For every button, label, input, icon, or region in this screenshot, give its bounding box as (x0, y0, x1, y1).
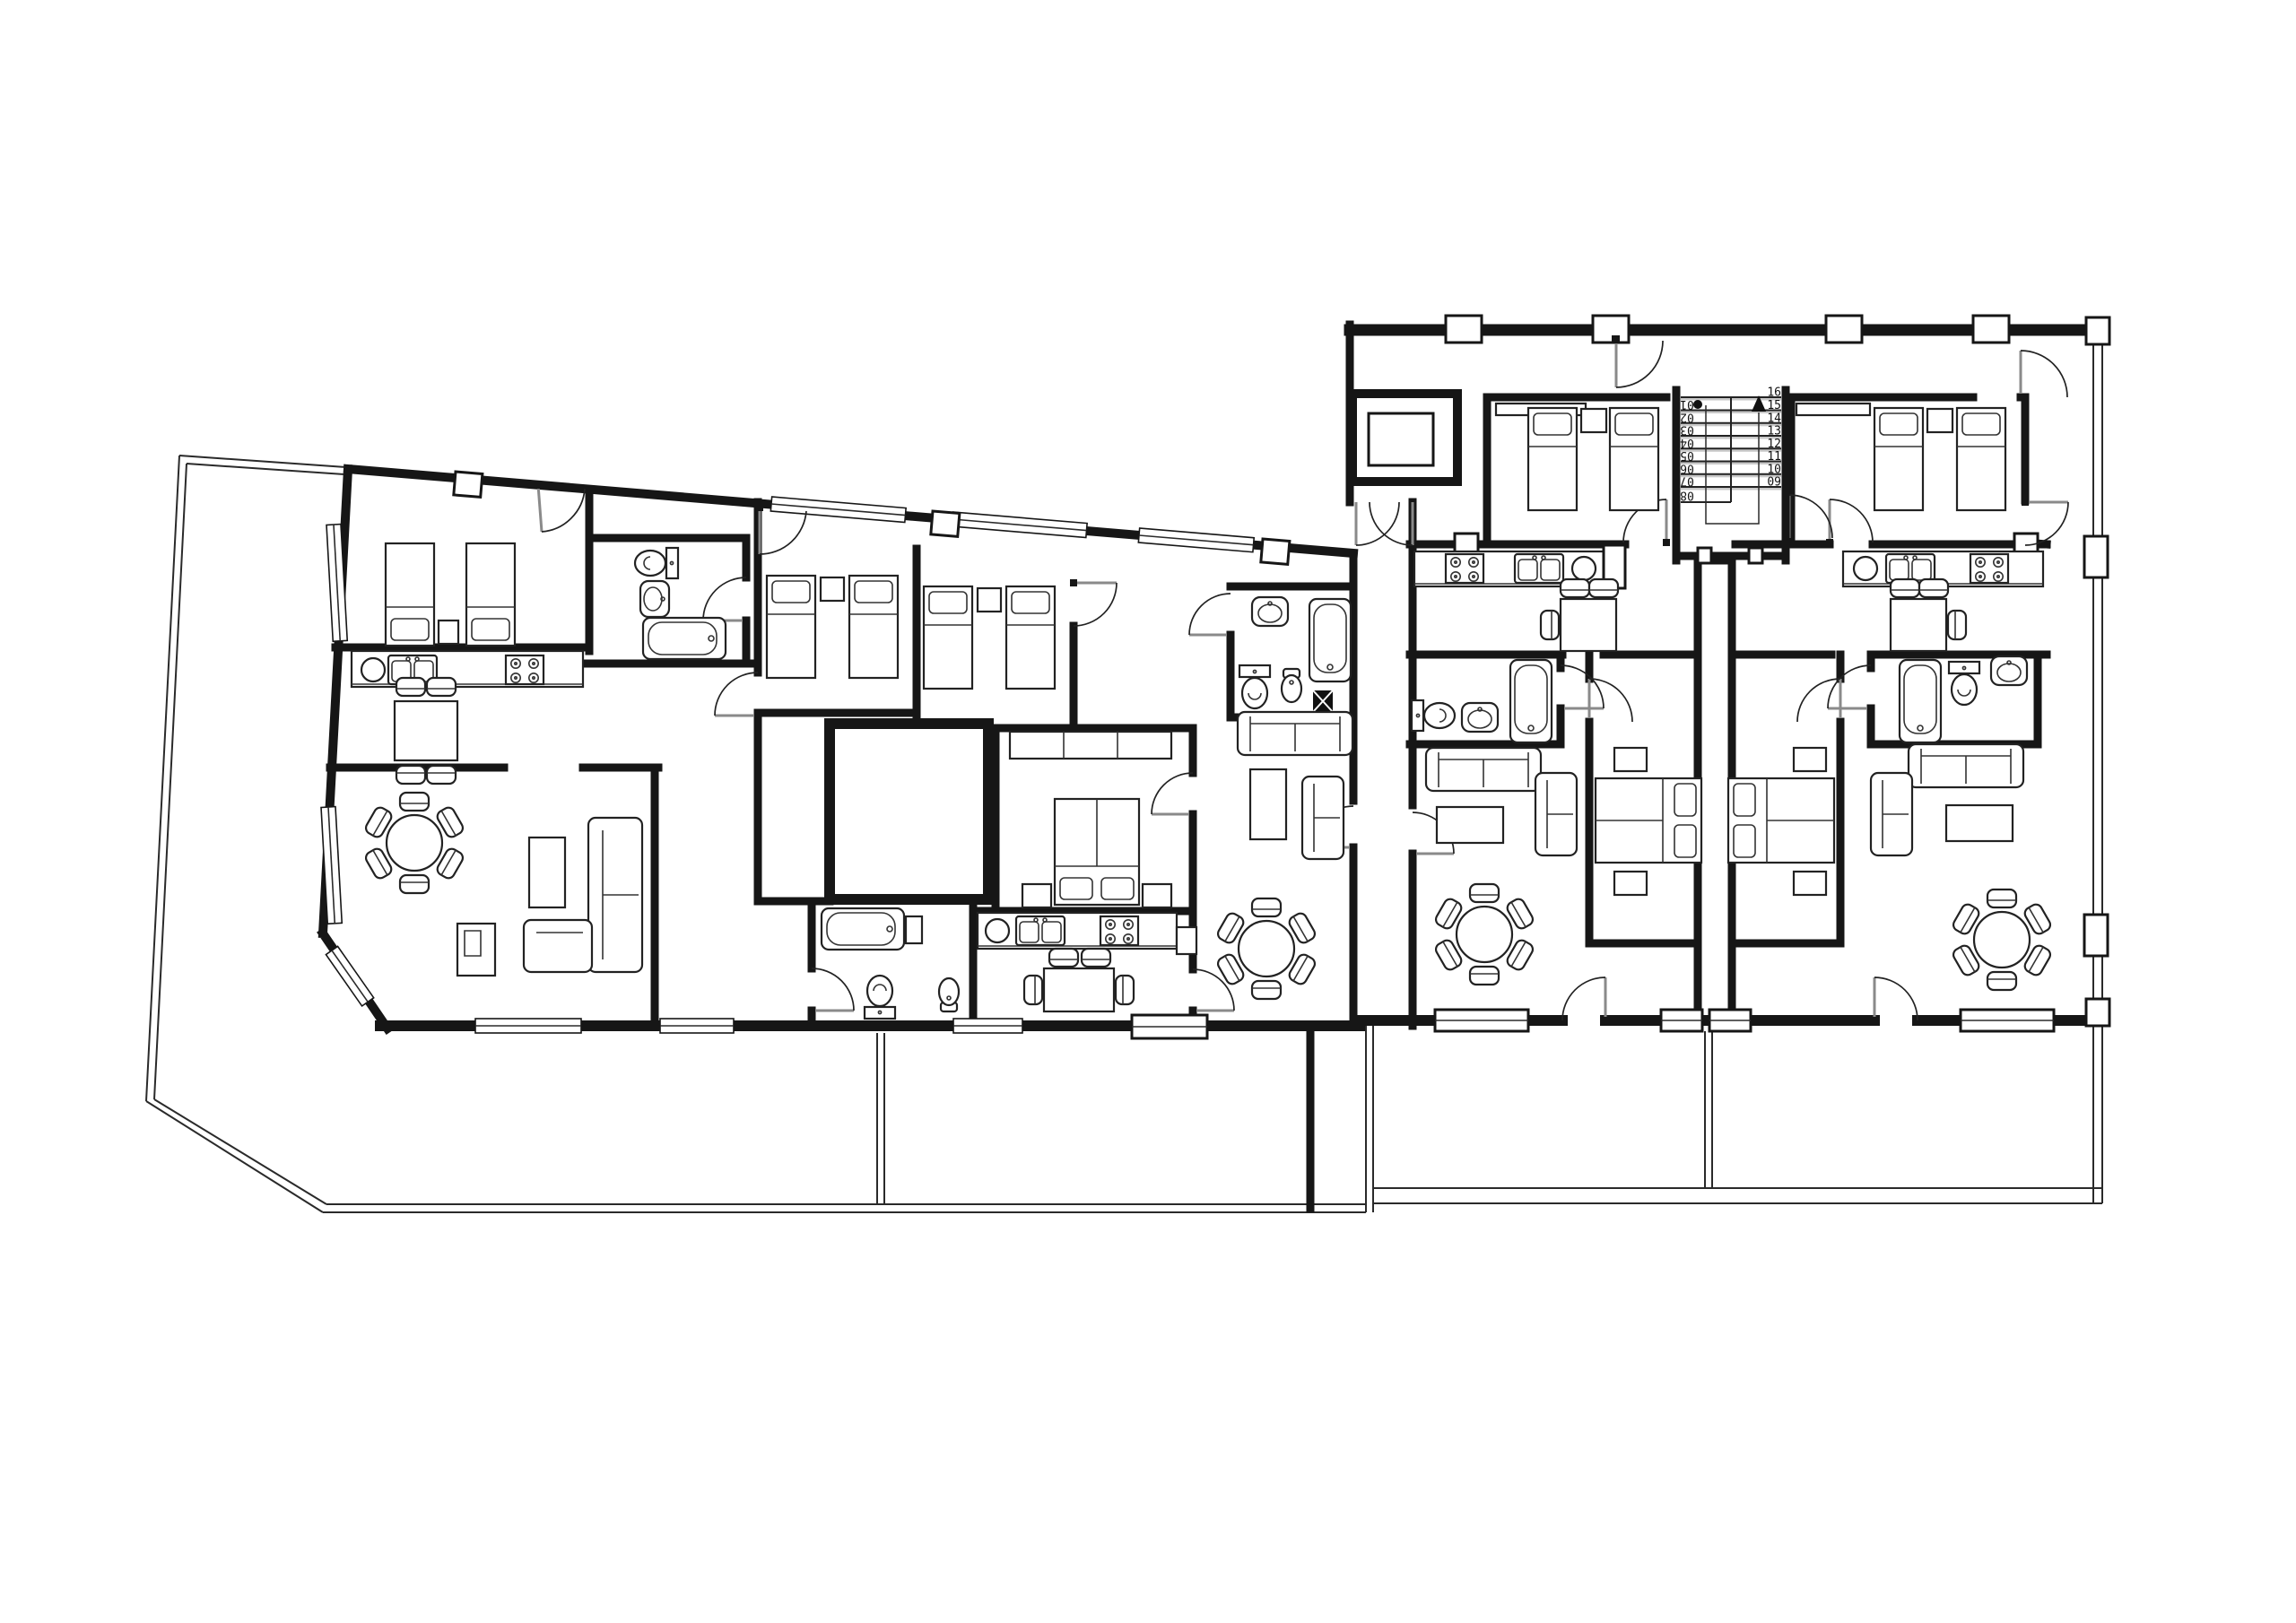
chair-icon (1561, 579, 1589, 597)
toilet-icon (865, 976, 895, 1019)
nightstand-icon (1794, 872, 1826, 895)
shelf-icon (1796, 404, 1870, 415)
chair-icon (427, 678, 456, 696)
sofa-icon (1871, 773, 1912, 855)
washing-machine-icon (1854, 557, 1877, 580)
stove-icon (506, 655, 544, 684)
bedroom-door (1586, 679, 1632, 725)
bidet-icon (1282, 669, 1301, 702)
stair-step-number: 16 (1767, 386, 1781, 400)
sofa-icon (1238, 712, 1352, 755)
stair-step-number: 12 (1767, 438, 1781, 451)
single-bed-icon (1610, 408, 1658, 510)
bathtub-icon (822, 908, 904, 950)
single-bed-icon (924, 586, 972, 689)
unit2-bedroom (767, 576, 898, 678)
bedroom-door (1152, 773, 1196, 818)
double-bed-icon (1596, 778, 1701, 863)
kitchen-sink-icon (1515, 554, 1563, 583)
chair-icon (1116, 976, 1134, 1004)
round-table-6-chairs-icon (1434, 884, 1535, 985)
stair-step-number: 14 (1767, 412, 1781, 425)
pilaster (2084, 915, 2108, 956)
chair-icon (1589, 579, 1618, 597)
single-bed-icon (767, 576, 815, 678)
bathtub-icon (1309, 599, 1351, 681)
stair-pier (1698, 548, 1711, 563)
coffee-table-icon (1946, 805, 2013, 841)
dining-table-icon (395, 701, 457, 760)
unit3-living-room (1177, 712, 1352, 999)
unitR2-bedroom (1796, 404, 2005, 510)
stair-step-number: 09 (1767, 476, 1781, 490)
single-bed-icon (1528, 408, 1577, 510)
bedroom-door (1797, 679, 1844, 725)
chair-icon (396, 766, 425, 784)
stair-step-number: 08 (1680, 489, 1694, 502)
nightstand-icon (1927, 409, 1952, 432)
chair-icon (1891, 579, 1919, 597)
nightstand-icon (1143, 884, 1171, 907)
washing-machine-icon (361, 658, 385, 681)
stair-step-number: 06 (1680, 461, 1694, 474)
bathtub-icon (643, 618, 726, 659)
stair-step-number: 11 (1767, 450, 1781, 464)
elevator-lobby-door (1370, 502, 1413, 545)
unit2-kitchen (978, 913, 1177, 1011)
coffee-table-icon (1250, 769, 1286, 839)
nightstand-icon (1614, 872, 1647, 895)
staircase: 0102030405060708 1615141312111009 (1676, 386, 1786, 564)
double-bed-icon (1055, 799, 1139, 905)
stair-step-number: 05 (1680, 448, 1694, 462)
chair-icon (427, 766, 456, 784)
coffee-table-icon (1437, 807, 1503, 843)
toilet-icon (1949, 662, 1979, 705)
unit3-bedroom-double (1010, 732, 1171, 907)
stair-step-number: 03 (1680, 423, 1694, 437)
stair-step-number: 04 (1680, 436, 1694, 449)
stair-pier (1749, 548, 1762, 563)
stair-left-step-numbers: 0102030405060708 (1680, 397, 1694, 502)
chair-icon (1049, 949, 1078, 967)
chair-icon (1948, 611, 1966, 639)
kitchen-sink-icon (1016, 916, 1065, 945)
washing-machine-icon (986, 919, 1009, 942)
washbasin-icon (1462, 703, 1498, 732)
unit1-kitchen (352, 651, 583, 687)
nightstand-icon (1581, 409, 1606, 432)
balcony-door (1562, 977, 1609, 1024)
unitR1-living-room (1426, 748, 1577, 985)
chair-icon (1919, 579, 1948, 597)
chair-icon (1024, 976, 1042, 1004)
kitchen-table-icon (1044, 968, 1114, 1011)
unitR2-bedroom-double (1728, 748, 1834, 895)
unit2-bathroom (822, 908, 959, 1019)
unitR1-kitchen (1414, 545, 1625, 651)
nightstand-icon (821, 577, 844, 601)
unitR2-bathroom (1900, 656, 2027, 742)
stove-icon (1446, 554, 1483, 583)
shelf-icon (906, 916, 922, 943)
chair-icon (1082, 949, 1110, 967)
washing-machine-icon (1572, 557, 1596, 580)
bathtub-icon (1900, 660, 1941, 742)
unit1-bathroom (635, 548, 726, 659)
hall-door (715, 673, 761, 719)
washbasin-icon (1991, 656, 2027, 685)
round-table-6-chairs-icon (1952, 890, 2053, 990)
stove-icon (1100, 916, 1138, 945)
unit3-bathroom (1239, 597, 1351, 712)
sofa-icon (524, 920, 592, 972)
single-bed-icon (466, 543, 515, 646)
round-table-6-chairs-icon (1216, 898, 1318, 999)
sofa-icon (1535, 773, 1577, 855)
patio-lightwell (830, 724, 988, 899)
balcony-door (1871, 977, 1918, 1024)
unitR2-kitchen (1843, 551, 2043, 651)
pilaster (2086, 999, 2109, 1026)
floor-plan-drawing: 0102030405060708 1615141312111009 (0, 0, 2296, 1623)
stove-icon (1970, 554, 2008, 583)
bathtub-icon (1510, 660, 1552, 742)
stair-side-door (1789, 495, 1832, 538)
toilet-icon (635, 548, 678, 578)
stair-step-number: 02 (1680, 410, 1694, 423)
nightstand-icon (978, 588, 1001, 612)
cabinet-icon (1177, 927, 1196, 954)
round-table-6-chairs-icon (364, 793, 465, 893)
nightstand-icon (1794, 748, 1826, 771)
balcony-outlines (877, 1026, 2102, 1212)
unitR2-living-room (1871, 744, 2052, 990)
unitR1-bedroom (1496, 404, 1658, 510)
elevator-lobby-door (1356, 502, 1399, 545)
building-entrance-door (1612, 335, 1663, 387)
unit3-bedroom-twin (924, 586, 1055, 689)
single-bed-icon (1006, 586, 1055, 689)
floor-plan-page: 0102030405060708 1615141312111009 (0, 0, 2296, 1623)
unit1-living-room (364, 793, 642, 976)
bedroom-door (1070, 579, 1117, 626)
bathroom-door (1828, 665, 1874, 712)
stair-step-number: 13 (1767, 425, 1781, 438)
kitchen-counter (352, 651, 583, 687)
toilet-icon (1239, 665, 1270, 708)
wall-pier (1455, 534, 1478, 553)
single-bed-icon (849, 576, 898, 678)
bedroom-door (1826, 499, 1873, 546)
nightstand-icon (439, 621, 458, 644)
stair-step-number: 15 (1767, 399, 1781, 412)
stair-steps (1681, 397, 1781, 502)
toilet-icon (1412, 700, 1455, 731)
stair-step-number: 10 (1767, 463, 1781, 476)
kitchen-table-icon (1561, 599, 1616, 651)
wall-pier (2014, 534, 2038, 553)
unitR1-bedroom-double (1596, 748, 1701, 895)
nightstand-icon (1022, 884, 1051, 907)
chair-icon (396, 678, 425, 696)
nightstand-icon (1614, 748, 1647, 771)
washbasin-icon (640, 581, 669, 617)
bathroom-door (1189, 594, 1234, 638)
sofa-icon (1302, 777, 1344, 859)
double-bed-icon (1728, 778, 1834, 863)
wardrobe-icon (1010, 732, 1171, 759)
pilaster (2084, 536, 2108, 577)
sofa-icon (1909, 744, 2023, 787)
unitR1-bathroom (1412, 660, 1552, 742)
single-bed-icon (1957, 408, 2005, 510)
single-bed-icon (386, 543, 434, 646)
stair-right-step-numbers: 1615141312111009 (1767, 386, 1781, 490)
bathroom-door (808, 968, 854, 1014)
elevator (1352, 394, 1457, 482)
bathroom-door (1557, 665, 1604, 712)
stair-step-number: 01 (1680, 397, 1694, 411)
washbasin-icon (1252, 597, 1288, 626)
chair-icon (1541, 611, 1559, 639)
bidet-icon (939, 978, 959, 1011)
unit1-bedroom (386, 543, 515, 646)
kitchen-table-icon (1891, 599, 1946, 651)
sofa-icon (1426, 748, 1541, 791)
pilaster (2086, 317, 2109, 344)
single-bed-icon (1874, 408, 1923, 510)
coffee-table-icon (529, 838, 565, 907)
stair-step-number: 07 (1680, 474, 1694, 488)
